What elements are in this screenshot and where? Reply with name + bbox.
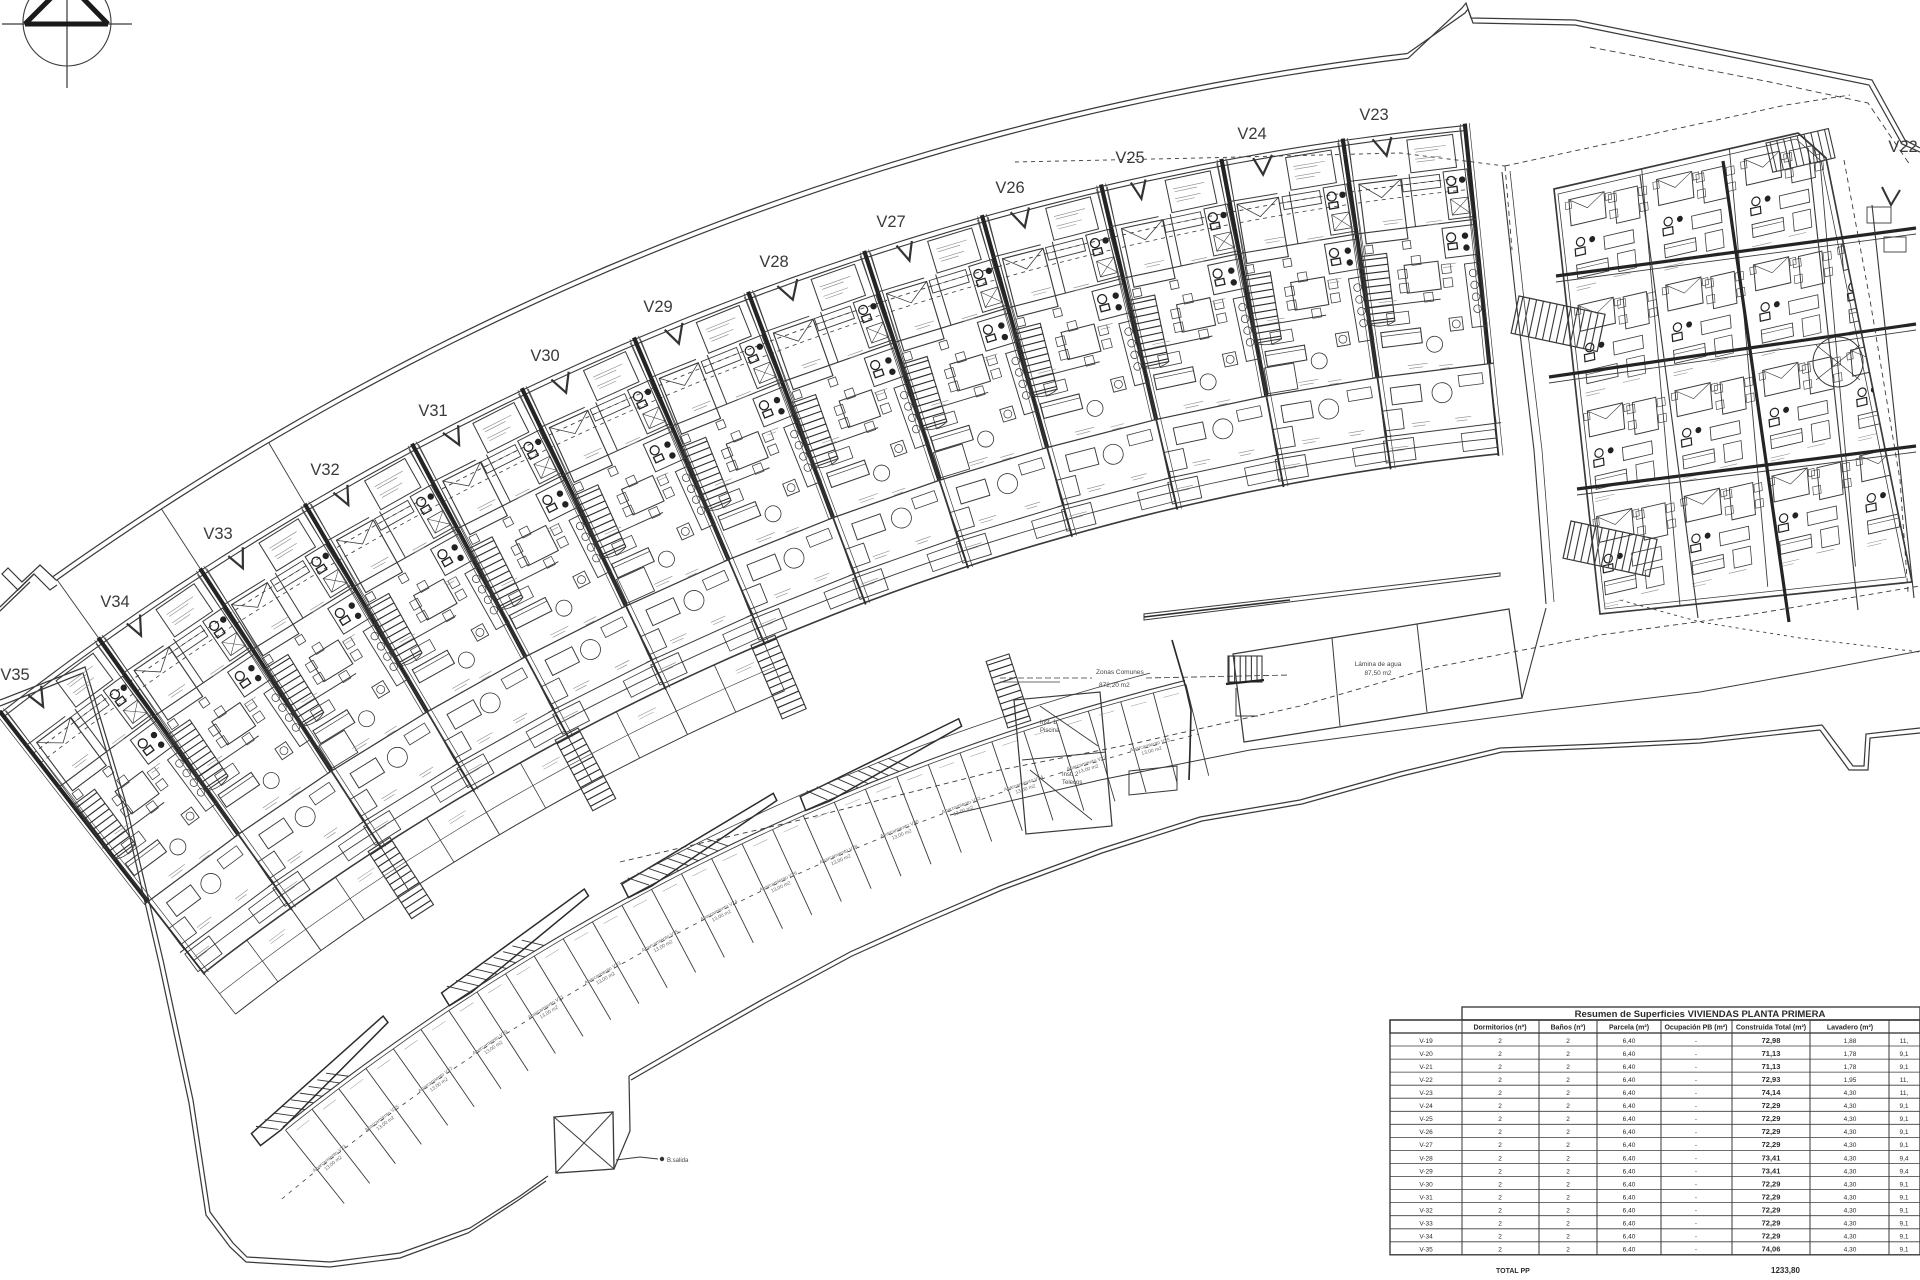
svg-text:-: - [1695,1221,1697,1228]
svg-text:73,41: 73,41 [1762,1153,1781,1162]
svg-text:9,1: 9,1 [1899,1103,1908,1110]
svg-text:V28: V28 [759,253,788,271]
svg-text:9,1: 9,1 [1899,1234,1908,1241]
svg-text:4,30: 4,30 [1844,1103,1857,1110]
svg-text:V35: V35 [0,666,29,684]
svg-text:V-32: V-32 [1419,1208,1433,1215]
svg-text:2: 2 [1498,1038,1502,1045]
svg-text:74,06: 74,06 [1762,1245,1781,1254]
svg-text:-: - [1695,1194,1697,1201]
svg-text:2: 2 [1498,1116,1502,1123]
svg-text:1,78: 1,78 [1844,1064,1857,1071]
svg-text:V33: V33 [203,525,232,543]
svg-text:72,29: 72,29 [1762,1206,1781,1215]
svg-text:V25: V25 [1115,149,1144,167]
svg-text:9,1: 9,1 [1899,1051,1908,1058]
svg-text:V-30: V-30 [1419,1181,1433,1188]
svg-text:1,88: 1,88 [1844,1038,1857,1045]
svg-text:2: 2 [1498,1142,1502,1149]
svg-text:6,40: 6,40 [1623,1142,1636,1149]
svg-text:-: - [1695,1038,1697,1045]
svg-text:6,40: 6,40 [1623,1077,1636,1084]
svg-text:4,30: 4,30 [1844,1208,1857,1215]
svg-text:6,40: 6,40 [1623,1221,1636,1228]
svg-text:4,30: 4,30 [1844,1129,1857,1136]
svg-text:Lámina de agua: Lámina de agua [1355,661,1402,668]
svg-text:V-31: V-31 [1419,1194,1433,1201]
svg-text:-: - [1695,1155,1697,1162]
svg-text:2: 2 [1498,1077,1502,1084]
svg-text:6,40: 6,40 [1623,1168,1636,1175]
svg-text:4,30: 4,30 [1844,1234,1857,1241]
svg-text:2: 2 [1566,1234,1570,1241]
svg-text:6,40: 6,40 [1623,1155,1636,1162]
svg-text:V-27: V-27 [1419,1142,1433,1149]
svg-text:9,1: 9,1 [1899,1247,1908,1254]
svg-text:B.salida: B.salida [667,1158,689,1164]
svg-text:72,29: 72,29 [1762,1232,1781,1241]
svg-text:Ocupación PB (m²): Ocupación PB (m²) [1664,1025,1727,1032]
svg-text:Resumen de Superficies VIVIEND: Resumen de Superficies VIVIENDAS PLANTA … [1575,1009,1826,1020]
svg-text:6,40: 6,40 [1623,1234,1636,1241]
svg-text:-: - [1695,1103,1697,1110]
svg-text:V-33: V-33 [1419,1221,1433,1228]
svg-text:872,20 m2: 872,20 m2 [1099,682,1130,689]
svg-text:2: 2 [1498,1155,1502,1162]
svg-text:V-24: V-24 [1419,1103,1433,1110]
svg-text:V34: V34 [100,593,129,611]
svg-text:2: 2 [1566,1064,1570,1071]
svg-text:2: 2 [1498,1051,1502,1058]
svg-text:V22: V22 [1888,138,1917,156]
svg-text:2: 2 [1566,1208,1570,1215]
svg-text:V31: V31 [418,402,447,420]
svg-text:72,29: 72,29 [1762,1192,1781,1201]
svg-text:2: 2 [1498,1168,1502,1175]
svg-text:72,93: 72,93 [1762,1075,1781,1084]
svg-text:TOTAL PP: TOTAL PP [1496,1268,1530,1275]
svg-text:9,1: 9,1 [1899,1208,1908,1215]
svg-text:6,40: 6,40 [1623,1129,1636,1136]
svg-text:Dormitorios (nº): Dormitorios (nº) [1473,1025,1526,1032]
svg-text:9,1: 9,1 [1899,1064,1908,1071]
svg-text:2: 2 [1566,1038,1570,1045]
svg-text:Zonas Comunes: Zonas Comunes [1096,669,1144,676]
svg-text:V30: V30 [530,347,559,365]
svg-text:2: 2 [1566,1142,1570,1149]
svg-text:71,13: 71,13 [1762,1049,1781,1058]
svg-text:2: 2 [1498,1103,1502,1110]
svg-text:4,30: 4,30 [1844,1181,1857,1188]
svg-text:Construida Total (m²): Construida Total (m²) [1736,1025,1806,1032]
svg-text:2: 2 [1498,1234,1502,1241]
svg-text:9,1: 9,1 [1899,1181,1908,1188]
svg-text:1233,80: 1233,80 [1771,1266,1800,1275]
svg-text:2: 2 [1566,1221,1570,1228]
svg-text:V27: V27 [876,213,905,231]
svg-text:V-21: V-21 [1419,1064,1433,1071]
svg-text:-: - [1695,1181,1697,1188]
svg-text:4,30: 4,30 [1844,1194,1857,1201]
svg-text:2: 2 [1566,1168,1570,1175]
svg-text:9,4: 9,4 [1899,1168,1908,1175]
svg-text:11,: 11, [1900,1038,1909,1045]
svg-text:6,40: 6,40 [1623,1103,1636,1110]
svg-text:74,14: 74,14 [1762,1088,1782,1097]
svg-text:Inst. 1: Inst. 1 [1040,720,1057,726]
svg-text:2: 2 [1498,1181,1502,1188]
svg-text:V-25: V-25 [1419,1116,1433,1123]
svg-text:Lavadero (m²): Lavadero (m²) [1827,1025,1873,1032]
svg-text:2: 2 [1566,1181,1570,1188]
svg-text:6,40: 6,40 [1623,1064,1636,1071]
svg-text:-: - [1695,1247,1697,1254]
svg-text:2: 2 [1498,1194,1502,1201]
svg-text:4,30: 4,30 [1844,1116,1857,1123]
svg-text:2: 2 [1566,1129,1570,1136]
svg-text:2: 2 [1498,1247,1502,1254]
svg-text:1,95: 1,95 [1844,1077,1857,1084]
svg-text:72,29: 72,29 [1762,1114,1781,1123]
svg-text:6,40: 6,40 [1623,1090,1636,1097]
svg-text:6,40: 6,40 [1623,1051,1636,1058]
svg-text:72,98: 72,98 [1762,1036,1781,1045]
svg-text:Parcela (m²): Parcela (m²) [1609,1025,1649,1032]
svg-text:87,50 m2: 87,50 m2 [1364,670,1391,677]
svg-text:Inst. 2: Inst. 2 [1062,772,1079,778]
svg-text:11,: 11, [1900,1090,1909,1097]
svg-text:V-35: V-35 [1419,1247,1433,1254]
svg-text:6,40: 6,40 [1623,1208,1636,1215]
svg-text:V23: V23 [1359,106,1388,124]
svg-text:V-23: V-23 [1419,1090,1433,1097]
svg-text:2: 2 [1498,1064,1502,1071]
svg-text:11,: 11, [1900,1077,1909,1084]
svg-text:2: 2 [1566,1051,1570,1058]
svg-text:9,4: 9,4 [1899,1155,1908,1162]
svg-text:2: 2 [1566,1116,1570,1123]
svg-text:-: - [1695,1051,1697,1058]
svg-text:V-19: V-19 [1419,1038,1433,1045]
svg-text:2: 2 [1498,1208,1502,1215]
svg-text:V32: V32 [310,461,339,479]
svg-text:V-22: V-22 [1419,1077,1433,1084]
svg-text:2: 2 [1498,1221,1502,1228]
svg-text:6,40: 6,40 [1623,1247,1636,1254]
svg-text:Baños (nº): Baños (nº) [1551,1025,1586,1032]
svg-text:V-28: V-28 [1419,1155,1433,1162]
svg-text:2: 2 [1498,1090,1502,1097]
svg-text:2: 2 [1566,1247,1570,1254]
svg-text:V29: V29 [643,298,672,316]
svg-text:V24: V24 [1237,125,1266,143]
svg-text:4,30: 4,30 [1844,1168,1857,1175]
svg-text:72,29: 72,29 [1762,1140,1781,1149]
svg-text:6,40: 6,40 [1623,1194,1636,1201]
svg-text:72,29: 72,29 [1762,1179,1781,1188]
svg-text:-: - [1695,1168,1697,1175]
svg-text:-: - [1695,1208,1697,1215]
svg-text:1,78: 1,78 [1844,1051,1857,1058]
svg-text:9,1: 9,1 [1899,1142,1908,1149]
svg-text:-: - [1695,1116,1697,1123]
svg-text:-: - [1695,1234,1697,1241]
svg-text:2: 2 [1566,1194,1570,1201]
svg-text:4,30: 4,30 [1844,1142,1857,1149]
svg-text:V-26: V-26 [1419,1129,1433,1136]
svg-text:V-20: V-20 [1419,1051,1433,1058]
svg-text:6,40: 6,40 [1623,1038,1636,1045]
svg-text:V-29: V-29 [1419,1168,1433,1175]
svg-text:72,29: 72,29 [1762,1127,1781,1136]
svg-text:4,30: 4,30 [1844,1247,1857,1254]
svg-text:2: 2 [1566,1077,1570,1084]
svg-text:-: - [1695,1142,1697,1149]
svg-text:2: 2 [1566,1155,1570,1162]
svg-text:2: 2 [1498,1129,1502,1136]
svg-text:9,1: 9,1 [1899,1194,1908,1201]
svg-text:9,1: 9,1 [1899,1116,1908,1123]
svg-text:6,40: 6,40 [1623,1181,1636,1188]
svg-text:-: - [1695,1129,1697,1136]
svg-text:6,40: 6,40 [1623,1116,1636,1123]
svg-text:-: - [1695,1064,1697,1071]
svg-text:V-34: V-34 [1419,1234,1433,1241]
svg-text:9,1: 9,1 [1899,1221,1908,1228]
svg-text:4,30: 4,30 [1844,1090,1857,1097]
svg-text:72,29: 72,29 [1762,1219,1781,1228]
svg-text:-: - [1695,1077,1697,1084]
svg-text:72,29: 72,29 [1762,1101,1781,1110]
svg-text:4,30: 4,30 [1844,1221,1857,1228]
svg-text:2: 2 [1566,1103,1570,1110]
svg-text:9,1: 9,1 [1899,1129,1908,1136]
svg-text:4,30: 4,30 [1844,1155,1857,1162]
svg-text:-: - [1695,1090,1697,1097]
svg-text:71,13: 71,13 [1762,1062,1781,1071]
svg-text:2: 2 [1566,1090,1570,1097]
svg-text:V26: V26 [995,179,1024,197]
svg-text:Piscina: Piscina [1040,728,1060,734]
svg-text:73,41: 73,41 [1762,1166,1781,1175]
svg-text:Telecos.: Telecos. [1062,780,1084,786]
